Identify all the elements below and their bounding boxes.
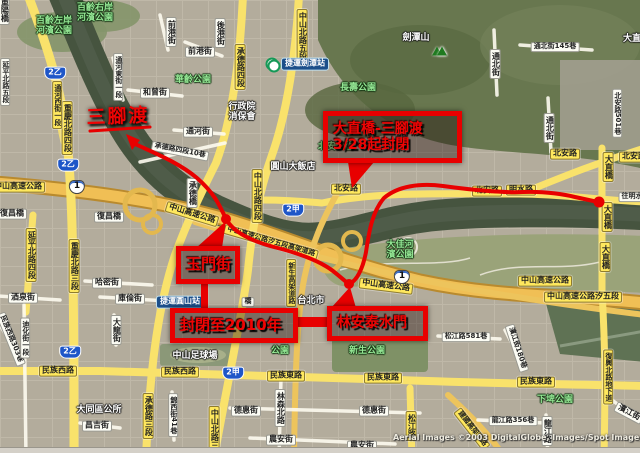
closure-annotation-box: 封閉至2010年 [170, 308, 298, 343]
closure-annotation-box: 玉門街 [176, 246, 240, 284]
closure-annotation-box: 大直橋-三腳渡3/28起封閉 [323, 111, 462, 163]
bottom-edge-strip [0, 447, 640, 453]
closure-annotation-box: 林安泰水門 [327, 306, 428, 341]
satellite-map[interactable]: 中山高速公路中山高速公路中山高速公路中山高速公路中山高速公路汐五段中山高速公路汐… [0, 0, 640, 453]
imagery-attribution: Aerial Images ©2003 DigitalGlobe, Images… [393, 433, 640, 442]
handwritten-closure-label: 三腳渡 [86, 105, 150, 128]
annotation-boxes-layer: 三腳渡大直橋-三腳渡3/28起封閉玉門街封閉至2010年林安泰水門 [0, 0, 640, 453]
